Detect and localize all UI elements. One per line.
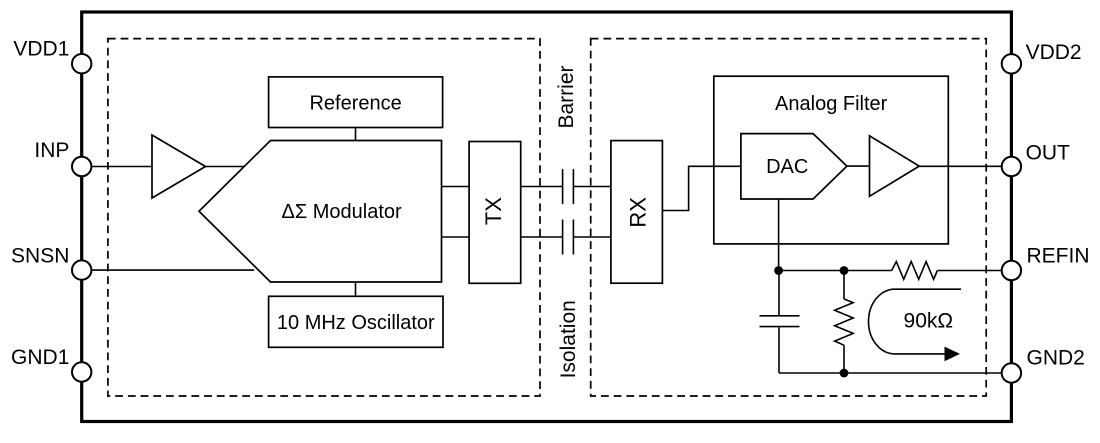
svg-text:Barrier: Barrier bbox=[555, 65, 578, 128]
svg-text:VDD2: VDD2 bbox=[1026, 41, 1082, 64]
svg-text:TX: TX bbox=[481, 197, 506, 225]
svg-text:10 MHz Oscillator: 10 MHz Oscillator bbox=[277, 312, 435, 334]
svg-text:GND1: GND1 bbox=[11, 346, 69, 369]
svg-text:Isolation: Isolation bbox=[557, 300, 580, 378]
svg-text:REFIN: REFIN bbox=[1027, 245, 1090, 268]
svg-text:ΔΣ Modulator: ΔΣ Modulator bbox=[281, 201, 402, 223]
svg-text:RX: RX bbox=[626, 197, 651, 228]
svg-text:GND2: GND2 bbox=[1027, 347, 1085, 370]
svg-text:90kΩ: 90kΩ bbox=[904, 309, 954, 332]
svg-text:SNSN: SNSN bbox=[11, 245, 69, 268]
svg-text:INP: INP bbox=[34, 139, 69, 162]
svg-text:Reference: Reference bbox=[309, 92, 401, 114]
svg-text:VDD1: VDD1 bbox=[13, 38, 69, 61]
svg-text:OUT: OUT bbox=[1026, 142, 1071, 165]
svg-text:DAC: DAC bbox=[766, 156, 808, 178]
svg-text:Analog Filter: Analog Filter bbox=[775, 93, 888, 115]
